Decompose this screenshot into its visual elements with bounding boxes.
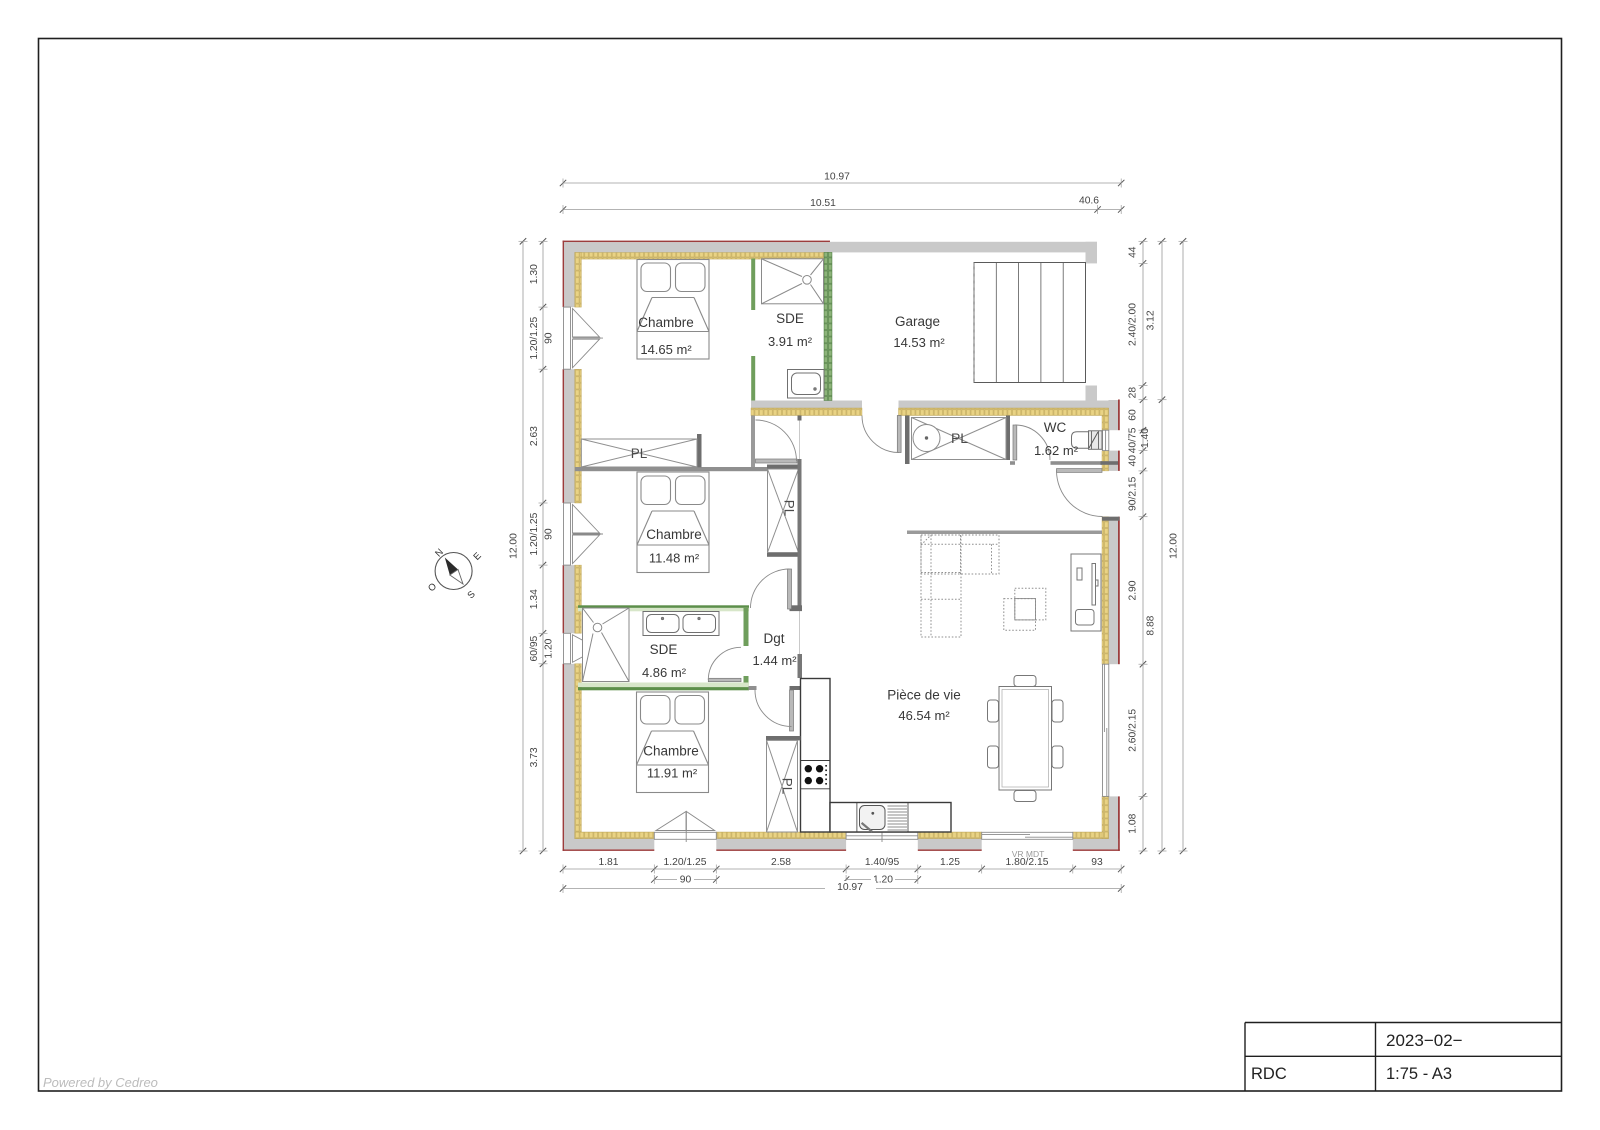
svg-text:10.97: 10.97 — [837, 882, 863, 893]
svg-text:1.30: 1.30 — [529, 264, 540, 284]
svg-text:44: 44 — [1128, 246, 1139, 258]
svg-text:1:75 - A3: 1:75 - A3 — [1386, 1065, 1452, 1083]
svg-text:14.53 m²: 14.53 m² — [893, 335, 945, 350]
svg-text:1.20: 1.20 — [873, 875, 893, 886]
svg-text:2.40/2.00: 2.40/2.00 — [1128, 303, 1139, 346]
svg-text:10.51: 10.51 — [810, 198, 836, 209]
svg-text:3.73: 3.73 — [529, 747, 540, 767]
svg-text:93: 93 — [1091, 857, 1103, 868]
svg-text:40.6: 40.6 — [1079, 196, 1099, 207]
svg-text:12.00: 12.00 — [1169, 533, 1180, 559]
svg-text:3.12: 3.12 — [1146, 310, 1157, 330]
svg-text:1.20: 1.20 — [544, 638, 555, 658]
svg-text:WC: WC — [1044, 420, 1067, 435]
svg-text:Pièce de vie: Pièce de vie — [887, 688, 961, 703]
svg-text:90: 90 — [680, 875, 692, 886]
svg-text:1.62 m²: 1.62 m² — [1034, 443, 1079, 458]
svg-text:1.34: 1.34 — [529, 589, 540, 609]
svg-text:28: 28 — [1128, 387, 1139, 399]
svg-text:1.08: 1.08 — [1128, 813, 1139, 833]
svg-text:40: 40 — [1128, 455, 1139, 467]
svg-text:2023−02−: 2023−02− — [1386, 1031, 1463, 1050]
svg-text:1.25: 1.25 — [940, 857, 960, 868]
svg-text:1.40/95: 1.40/95 — [865, 857, 900, 868]
svg-text:Chambre: Chambre — [646, 527, 702, 542]
svg-text:2.60/2.15: 2.60/2.15 — [1128, 709, 1139, 752]
svg-text:1.44 m²: 1.44 m² — [752, 653, 797, 668]
svg-text:Dgt: Dgt — [763, 631, 784, 646]
svg-text:2.58: 2.58 — [771, 857, 791, 868]
svg-text:Powered by Cedreo: Powered by Cedreo — [43, 1075, 158, 1090]
svg-text:90: 90 — [544, 332, 555, 344]
svg-text:11.91 m²: 11.91 m² — [647, 766, 698, 781]
svg-text:8.88: 8.88 — [1146, 615, 1157, 635]
svg-text:60/95: 60/95 — [529, 635, 540, 661]
svg-text:1.20/1.25: 1.20/1.25 — [529, 316, 540, 359]
svg-text:PL: PL — [631, 446, 648, 461]
svg-text:4.86 m²: 4.86 m² — [642, 665, 687, 680]
svg-text:60: 60 — [1128, 409, 1139, 421]
svg-text:1.40: 1.40 — [1140, 428, 1151, 448]
svg-text:90/2.15: 90/2.15 — [1128, 476, 1139, 511]
svg-text:1.20/1.25: 1.20/1.25 — [529, 512, 540, 555]
svg-text:10.97: 10.97 — [824, 172, 850, 183]
svg-text:Garage: Garage — [895, 314, 940, 329]
svg-text:2.90: 2.90 — [1128, 580, 1139, 600]
svg-text:40/75: 40/75 — [1128, 427, 1139, 453]
svg-text:SDE: SDE — [776, 311, 804, 326]
svg-text:1.20/1.25: 1.20/1.25 — [664, 857, 707, 868]
svg-text:90: 90 — [544, 528, 555, 540]
svg-text:RDC: RDC — [1251, 1065, 1287, 1083]
svg-text:12.00: 12.00 — [509, 533, 520, 559]
svg-text:14.65 m²: 14.65 m² — [640, 342, 692, 357]
svg-text:Chambre: Chambre — [643, 744, 699, 759]
svg-text:PL: PL — [779, 778, 794, 795]
svg-text:1.81: 1.81 — [598, 857, 618, 868]
svg-text:11.48 m²: 11.48 m² — [649, 551, 700, 566]
svg-text:PL: PL — [781, 500, 796, 517]
svg-text:46.54 m²: 46.54 m² — [898, 708, 950, 723]
svg-text:3.91 m²: 3.91 m² — [768, 334, 813, 349]
svg-text:SDE: SDE — [650, 642, 678, 657]
svg-text:2.63: 2.63 — [529, 426, 540, 446]
svg-text:VR MDT: VR MDT — [1012, 849, 1045, 859]
svg-text:Chambre: Chambre — [638, 315, 694, 330]
svg-text:PL: PL — [951, 430, 968, 446]
